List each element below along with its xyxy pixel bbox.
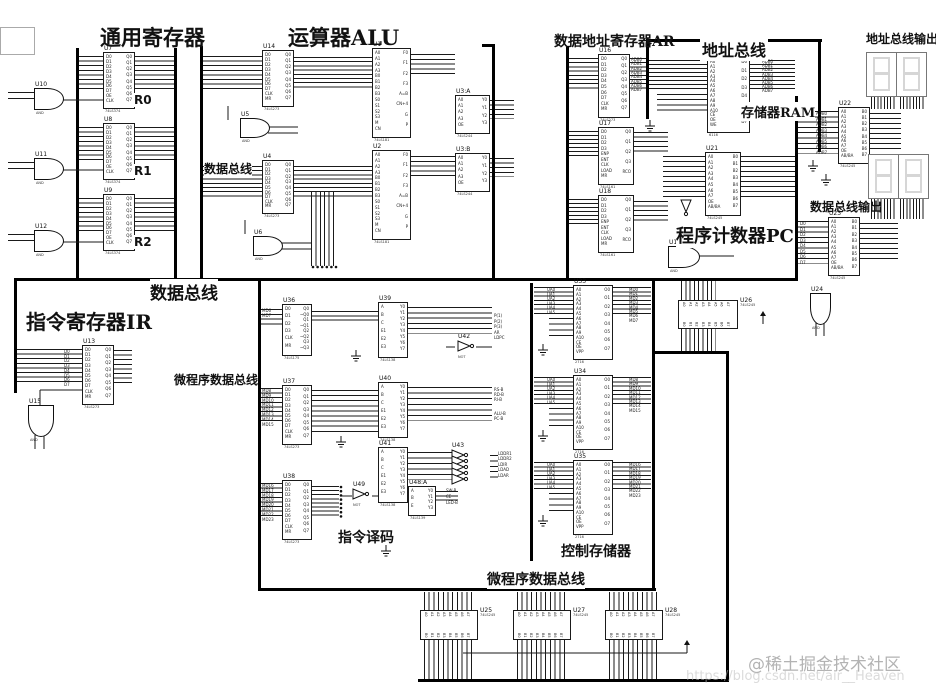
pin-label: Q5 [126, 228, 132, 232]
pin-label: B5 [852, 252, 857, 256]
seven-segment-display-4 [898, 154, 929, 199]
section-title-data-bus-output: 数据总线输出 [810, 198, 882, 215]
pin-label: A6 [645, 612, 649, 617]
pin-label: D6 [601, 91, 607, 95]
signal-label: LDAR [498, 474, 509, 478]
pin-label: D4 [106, 217, 112, 221]
pin-label: O1 [604, 471, 610, 475]
ic-part-number: 74LS181 [374, 138, 389, 142]
pin-label: B7 [559, 633, 563, 638]
ic-ref: U36 [283, 297, 295, 304]
pin-label: Q7 [105, 394, 111, 398]
pin-label: B6 [852, 258, 857, 262]
pin-label: B2 [436, 633, 440, 638]
pin-label: O5 [604, 330, 610, 334]
pin-label: Q0 [303, 483, 309, 487]
pin-label: O3 [604, 488, 610, 492]
pin-label: B4 [852, 246, 857, 250]
pin-label: B3 [375, 92, 380, 96]
label-register-r0: R0 [134, 93, 152, 107]
pin-label: Y0 [482, 98, 487, 102]
pin-label: A0 [682, 302, 686, 307]
section-title-general-registers: 通用寄存器 [100, 22, 205, 52]
ic-u28: U2874LS245A0A1A2A3A4A5A6A7B0B1B2B3B4B5B6… [605, 610, 663, 640]
pin-label: F2 [403, 174, 408, 178]
pin-label: VPP [576, 350, 584, 354]
ic-part-number: 2716 [575, 360, 584, 364]
pin-label: CLK [601, 231, 609, 235]
ic-ref: U48:A [409, 479, 427, 486]
signal-label: ADB3 [816, 129, 827, 133]
pin-label: B3 [627, 633, 631, 638]
pin-label: Q7 [303, 434, 309, 438]
ic-part-number: 74LS245 [740, 303, 755, 307]
pin-label: B2 [621, 633, 625, 638]
signal-label: LDAD [498, 468, 509, 472]
pin-label: S3 [375, 217, 380, 221]
pin-label: B5 [733, 190, 738, 194]
pin-label: MR [265, 204, 271, 208]
pin-label: D2 [601, 209, 607, 213]
pin-label: A3 [627, 612, 631, 617]
pin-label: Q0 [285, 163, 291, 167]
pin-label: A5 [713, 302, 717, 307]
pin-label: Q7 [303, 529, 309, 533]
pin-label: ~Q0 [300, 313, 309, 317]
pin-label: A3 [458, 117, 463, 121]
pin-label: B2 [862, 122, 867, 126]
pin-label: Y2 [400, 317, 405, 321]
pin-label: D3 [601, 74, 607, 78]
signal-label: ADB4 [816, 134, 827, 138]
pin-label: LOAD [601, 169, 612, 173]
pin-label: Q3 [126, 144, 132, 148]
pin-label: Q7 [285, 96, 291, 100]
pin-label: P [406, 225, 408, 229]
pin-label: Y0 [400, 450, 405, 454]
pin-label: A4 [633, 612, 637, 617]
pin-label: B4 [862, 135, 867, 139]
pin-label: Q0 [621, 57, 627, 61]
pin-label: O3 [604, 313, 610, 317]
ic-part-number: 74LS245 [830, 276, 845, 280]
pin-label: Q3 [625, 160, 631, 164]
signal-label: LDIR [498, 463, 507, 467]
ic-u3b: U3:B74LS244A0A1A2A3OEY0Y1Y2Y3 [455, 153, 490, 192]
pin-label: MR [285, 530, 291, 534]
pin-label: D2 [601, 141, 607, 145]
pin-label: S3 [375, 115, 380, 119]
pin-label: Y2 [482, 114, 487, 118]
pin-label: Q6 [621, 99, 627, 103]
pin-label: A4 [707, 302, 711, 307]
pin-label: A5 [547, 612, 551, 617]
ic-ref: U8 [104, 116, 112, 123]
pin-label: Q5 [126, 157, 132, 161]
pin-label: Q3 [126, 73, 132, 77]
signal-label: P(1) [494, 314, 502, 318]
pin-label: Q5 [126, 86, 132, 90]
pin-label: G [405, 113, 408, 117]
pin-label: Q2 [285, 175, 291, 179]
pin-label: D3 [285, 329, 291, 333]
ic-part-number: 74LS245 [840, 164, 855, 168]
pin-label: Y1 [428, 495, 433, 499]
pin-label: B5 [713, 322, 717, 327]
pin-label: E [411, 504, 414, 508]
ic-u7: U774LS374D0D1D2D3D4D5D6D7OECLKQ0Q1Q2Q3Q4… [103, 52, 135, 109]
pin-label: Q0 [303, 388, 309, 392]
pin-label: Y5 [400, 415, 405, 419]
ic-part-number: 74LS138 [380, 503, 395, 507]
pin-label: O6 [604, 428, 610, 432]
ic-part-number: 74LS245 [665, 613, 680, 617]
pin-label: B7 [651, 633, 655, 638]
pin-label: D1 [285, 314, 291, 318]
ic-u36: U3674LS175D0D1D2D3CLKMRQ0~Q0Q1~Q1Q2~Q2Q3… [282, 304, 312, 356]
pin-label: B7 [733, 204, 738, 208]
pin-label: Q4 [621, 85, 627, 89]
pin-label: OE [458, 123, 464, 127]
svg-text:NOT: NOT [458, 355, 466, 359]
ic-u9: U974LS374D0D1D2D3D4D5D6D7OECLKQ0Q1Q2Q3Q4… [103, 194, 135, 251]
pin-label: Q1 [285, 169, 291, 173]
pin-label: CLK [285, 525, 293, 529]
ic-part-number: 74LS273 [264, 107, 279, 111]
ic-part-number: 74LS244 [457, 134, 472, 138]
signal-label: LDDR2 [498, 457, 512, 461]
pin-label: Q1 [126, 132, 132, 136]
pin-label: D3 [601, 215, 607, 219]
pin-label: A0 [424, 612, 428, 617]
pin-label: A3 [375, 171, 380, 175]
ic-ref: U39 [379, 295, 391, 302]
pin-label: Q1 [625, 208, 631, 212]
pin-label: CN [375, 229, 381, 233]
pin-label: Q6 [285, 198, 291, 202]
section-title-ram: 存储器RAM [741, 102, 815, 121]
pin-label: Y2 [400, 462, 405, 466]
signal-label: ADB7 [631, 88, 642, 92]
pin-label: A4 [448, 612, 452, 617]
pin-label: ~Q3 [300, 346, 309, 350]
signal-label: D0 [800, 222, 806, 226]
pin-label: A1 [523, 612, 527, 617]
pin-label: S1 [375, 104, 380, 108]
signal-label: UA5 [547, 486, 555, 490]
pin-label: Q0 [105, 348, 111, 352]
signal-label: LED-B [446, 501, 458, 505]
pin-label: E2 [381, 482, 386, 486]
pin-label: E1 [381, 329, 386, 333]
ic-ref: U13 [83, 338, 95, 345]
pin-label: D0 [601, 57, 607, 61]
signal-label: SW-B [446, 489, 456, 493]
pin-label: B0 [852, 220, 857, 224]
ic-ref: U41 [379, 440, 391, 447]
pin-label: O4 [604, 412, 610, 416]
pin-label: A0 [458, 98, 463, 102]
segment-outline [873, 72, 890, 91]
pin-label: E1 [381, 474, 386, 478]
pin-label: B2 [529, 633, 533, 638]
ic-u48a: U48:A74LS139ABEY0Y1Y2Y3 [408, 486, 436, 516]
pin-label: AB/BA [841, 154, 853, 158]
pin-label: E3 [381, 345, 386, 349]
pin-label: A0 [609, 612, 613, 617]
pin-label: A3 [375, 69, 380, 73]
ic-u38: U3874LS273D0D1D2D3D4D5D6D7CLKMRQ0Q1Q2Q3Q… [282, 480, 312, 540]
pin-label: Q3 [126, 215, 132, 219]
pin-label: O2 [604, 480, 610, 484]
pin-label: F3 [403, 82, 408, 86]
section-title-address-bus-output: 地址总线输出 [866, 30, 936, 47]
pin-label: D1 [601, 204, 607, 208]
seven-segment-display-2 [896, 52, 927, 97]
pin-label: Q0 [303, 307, 309, 311]
pin-label: Y5 [400, 480, 405, 484]
pin-label: A3 [535, 612, 539, 617]
pin-label: D2 [285, 398, 291, 402]
ic-ref: U17 [599, 120, 611, 127]
pin-label: Q2 [126, 138, 132, 142]
pin-label: B1 [862, 116, 867, 120]
pin-label: Y1 [400, 391, 405, 395]
pin-label: Q4 [285, 78, 291, 82]
pin-label: A1 [708, 161, 713, 165]
pin-label: Q7 [126, 169, 132, 173]
pin-label: B6 [720, 322, 724, 327]
pin-label: M [375, 223, 378, 227]
pin-label: Q4 [285, 186, 291, 190]
pin-label: B3 [701, 322, 705, 327]
pin-label: Y1 [482, 106, 487, 110]
gate-type-label: AND [30, 438, 38, 442]
pin-label: B5 [454, 633, 458, 638]
gate-type-label: AND [255, 257, 263, 261]
pin-label: A3 [442, 612, 446, 617]
label-micro-bus-left: 微程序数据总线 [174, 371, 258, 388]
pin-label: RCO [622, 170, 631, 174]
ic-ref: U4 [263, 153, 271, 160]
signal-label: PC-B [494, 417, 503, 421]
pin-label: B6 [733, 197, 738, 201]
pin-label: A6 [460, 612, 464, 617]
pin-label: Q6 [105, 387, 111, 391]
pin-label: F0 [403, 153, 408, 157]
svg-text:NOT: NOT [353, 503, 361, 507]
gate-ref: U24 [811, 286, 823, 293]
pin-label: Q0 [625, 198, 631, 202]
signal-label: ADB7 [762, 89, 773, 93]
signal-label: ADB1 [816, 118, 827, 122]
signal-label: P(3) [494, 325, 502, 329]
signal-label: ADB2 [816, 123, 827, 127]
signal-label: D7 [64, 383, 70, 387]
ic-part-number: 74LS181 [374, 240, 389, 244]
signal-label: ADB7 [816, 151, 827, 155]
pin-label: B1 [430, 633, 434, 638]
pin-label: B4 [733, 183, 738, 187]
pin-label: Q1 [303, 395, 309, 399]
pin-label: A2 [708, 166, 713, 170]
pin-label: D0 [601, 198, 607, 202]
pin-label: Q1 [285, 59, 291, 63]
ic-ref: U35 [574, 453, 586, 460]
ic-part-number: 74LS374 [105, 109, 120, 113]
pin-label: B [411, 496, 414, 500]
segment-outline [905, 174, 922, 193]
pin-label: D3 [285, 404, 291, 408]
pin-label: D7 [85, 384, 91, 388]
pin-label: B7 [852, 265, 857, 269]
pin-label: A [381, 450, 384, 454]
pin-label: Y2 [400, 397, 405, 401]
pin-label: A2 [375, 165, 380, 169]
pin-label: A2 [529, 612, 533, 617]
label-data-bus-alu: 数据总线 [204, 160, 252, 177]
ic-part-number: 74LS175 [284, 356, 299, 360]
pin-label: A5 [454, 612, 458, 617]
pin-label: O1 [604, 296, 610, 300]
signal-label: D7 [800, 261, 806, 265]
pin-label: Q2 [126, 209, 132, 213]
gate-type-label: AND [242, 139, 250, 143]
pin-label: Q3 [303, 408, 309, 412]
pin-label: OE [708, 200, 714, 204]
pin-label: D3 [741, 86, 747, 90]
pin-label: MR [265, 97, 271, 101]
pin-label: Q1 [625, 140, 631, 144]
ic-ref: U33 [574, 278, 586, 285]
pin-label: Q1 [621, 64, 627, 68]
pin-label: ENT [601, 158, 609, 162]
pin-label: Q0 [126, 126, 132, 130]
pin-label: A4 [541, 612, 545, 617]
label-register-r2: R2 [134, 235, 152, 249]
pin-label: D1 [601, 136, 607, 140]
pin-label: B2 [852, 233, 857, 237]
pin-label: C [381, 321, 384, 325]
pin-label: O6 [604, 338, 610, 342]
pin-label: Y1 [482, 164, 487, 168]
pin-label: Q6 [285, 90, 291, 94]
pin-label: Q6 [126, 92, 132, 96]
pin-label: A=B [399, 194, 408, 198]
pin-label: B0 [375, 74, 380, 78]
ic-ref: U37 [283, 378, 295, 385]
pin-label: Y3 [400, 468, 405, 472]
ic-u14: U1474LS273D0D1D2D3D4D5D6D7CLKMRQ0Q1Q2Q3Q… [262, 50, 294, 107]
pin-label: Y2 [428, 500, 433, 504]
pin-label: A6 [553, 612, 557, 617]
pin-label: A [381, 305, 384, 309]
pin-label: B2 [733, 169, 738, 173]
pin-label: O7 [604, 347, 610, 351]
pin-label: B3 [852, 239, 857, 243]
signal-label: ADB0 [816, 112, 827, 116]
pin-label: B4 [633, 633, 637, 638]
section-title-pc: 程序计数器PC [676, 222, 794, 248]
label-instruction-decode: 指令译码 [338, 527, 394, 547]
pin-label: C [381, 401, 384, 405]
pin-label: O7 [604, 437, 610, 441]
ic-u23: U2374LS245A0A1A2A3A4A5A6A7OEAB/BAB0B1B2B… [828, 217, 860, 276]
ic-u22: U2274LS245A0A1A2A3A4A5A6A7OEAB/BAB0B1B2B… [838, 107, 870, 164]
ic-part-number: 74LS273 [264, 214, 279, 218]
pin-label: B3 [375, 194, 380, 198]
pin-label: B7 [466, 633, 470, 638]
pin-label: Q3 [303, 340, 309, 344]
pin-label: CLK [106, 170, 114, 174]
pin-label: A0 [708, 155, 713, 159]
pin-label: Q5 [105, 381, 111, 385]
label-micro-bus-bottom: 微程序数据总线 [487, 569, 585, 589]
pin-label: ~Q1 [300, 324, 309, 328]
pin-label: MR [285, 435, 291, 439]
pin-label: O4 [604, 497, 610, 501]
pin-label: Q7 [126, 240, 132, 244]
pin-label: Q1 [105, 355, 111, 359]
pin-label: WE [710, 123, 716, 127]
pin-label: A1 [615, 612, 619, 617]
pin-label: Y6 [400, 421, 405, 425]
pin-label: Q7 [126, 98, 132, 102]
pin-label: Q2 [303, 496, 309, 500]
pin-label: Y1 [400, 456, 405, 460]
pin-label: A2 [436, 612, 440, 617]
signal-label: D6 [800, 255, 806, 259]
ic-ref: U22 [839, 100, 851, 107]
pin-label: Q1 [126, 203, 132, 207]
ic-u39: U3974LS138ABCE1E2E3Y0Y1Y2Y3Y4Y5Y6Y7 [378, 302, 408, 358]
pin-label: B4 [707, 322, 711, 327]
pin-label: S2 [375, 110, 380, 114]
pin-label: Y6 [400, 341, 405, 345]
pin-label: B1 [852, 226, 857, 230]
pin-label: D7 [285, 424, 291, 428]
signal-label: LDDR1 [498, 452, 512, 456]
pin-label: Q2 [303, 329, 309, 333]
pin-label: B [381, 458, 384, 462]
section-title-address-bus: 地址总线 [700, 37, 768, 61]
section-title-control-store: 控制存储器 [561, 541, 631, 561]
pin-label: D5 [601, 85, 607, 89]
pin-label: Y7 [400, 347, 405, 351]
ic-part-number: 74LS245 [480, 613, 495, 617]
pin-label: M [375, 121, 378, 125]
ic-u17: U1774LS161D0D1D2D3ENPENTCLKLOADMRQ0Q1Q2Q… [598, 127, 634, 185]
pin-label: B0 [733, 155, 738, 159]
pin-label: Y3 [400, 323, 405, 327]
pin-label: Y0 [400, 305, 405, 309]
pin-label: A4 [708, 177, 713, 181]
signal-label: MD23 [262, 518, 274, 522]
pin-label: A0 [517, 612, 521, 617]
signal-label: LDPC [494, 336, 505, 340]
ic-u1: U174LS181A0A1A2A3B0B1B2B3S0S1S2S3MCNF0F1… [372, 48, 411, 138]
pin-label: B1 [523, 633, 527, 638]
pin-label: Q5 [285, 84, 291, 88]
pin-label: O7 [604, 522, 610, 526]
ic-u41: U4174LS138ABCE1E2E3Y0Y1Y2Y3Y4Y5Y6Y7 [378, 447, 408, 503]
pin-label: B0 [424, 633, 428, 638]
signal-label: P(2) [494, 320, 502, 324]
ic-u3a: U3:A74LS244A0A1A2A3OEY0Y1Y2Y3 [455, 95, 490, 134]
pin-label: D0 [285, 307, 291, 311]
ic-part-number: 74LS161 [600, 253, 615, 257]
pin-label: B7 [726, 322, 730, 327]
